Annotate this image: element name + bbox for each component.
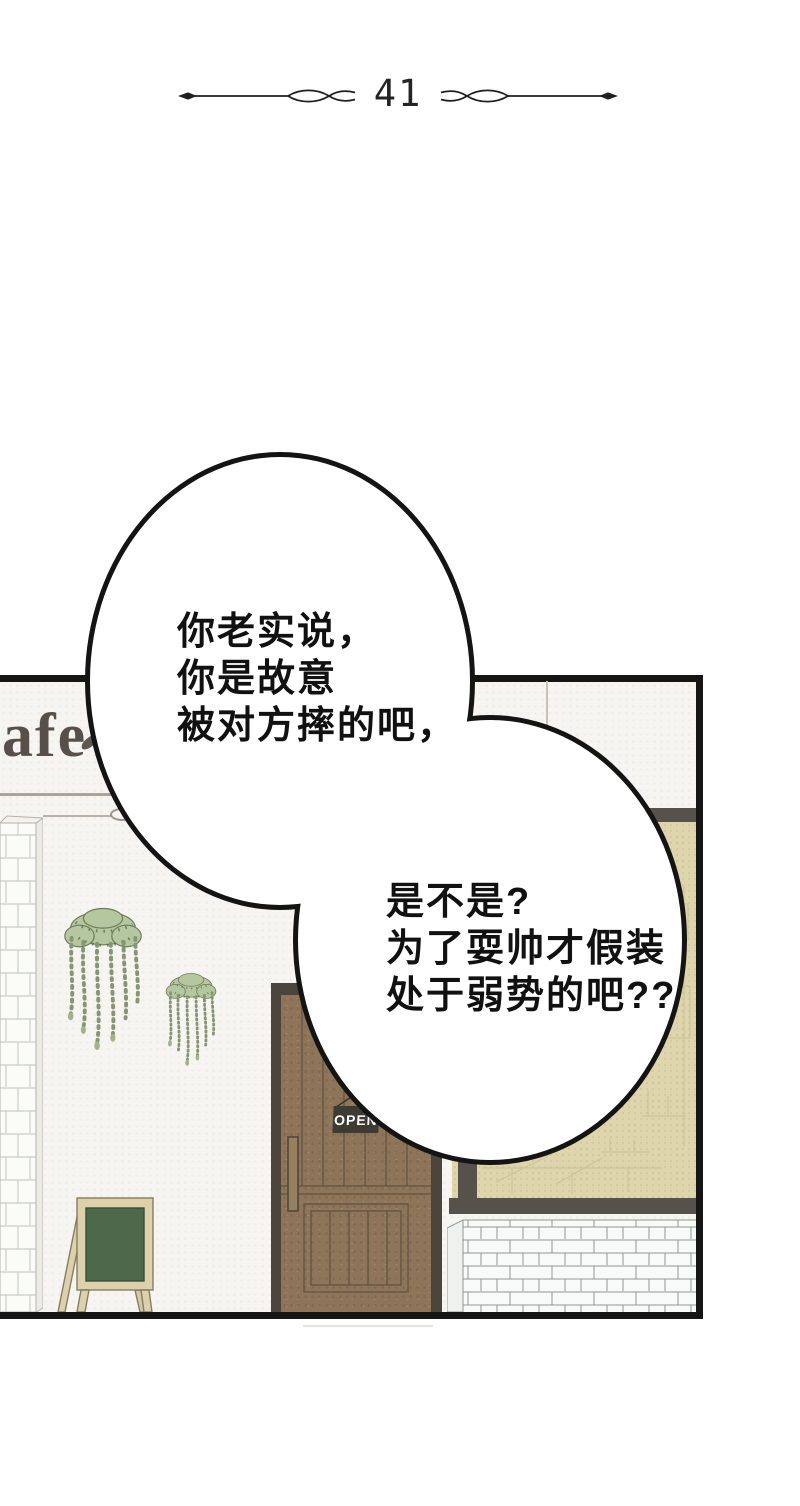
flourish-left-icon	[178, 84, 356, 108]
chapter-number: 41	[352, 72, 444, 115]
speech-line: 为了耍帅才假装	[386, 926, 676, 973]
chalkboard-easel	[53, 1190, 160, 1312]
comic-page: 41 afe	[0, 0, 800, 1506]
speech-text-1: 你老实说， 你是故意 被对方摔的吧，	[177, 609, 457, 750]
cafe-sign-text: afe	[2, 701, 87, 771]
brick-pillar	[0, 811, 43, 1312]
flourish-right-icon	[440, 84, 618, 108]
speech-text-2: 是不是? 为了耍帅才假装 处于弱势的吧??	[386, 879, 676, 1020]
speech-line: 被对方摔的吧，	[177, 703, 457, 750]
speech-line: 处于弱势的吧??	[386, 973, 676, 1020]
speech-line: 是不是?	[386, 879, 676, 926]
hanging-plant-large	[54, 903, 152, 1063]
speech-line: 你老实说，	[177, 609, 457, 656]
window-frame-sill	[449, 1198, 696, 1214]
speech-line: 你是故意	[177, 656, 457, 703]
hanging-plant-small	[156, 971, 226, 1073]
page-shadow-line	[303, 1325, 433, 1327]
brick-half-wall	[447, 1213, 696, 1312]
door-handle	[288, 1137, 298, 1211]
